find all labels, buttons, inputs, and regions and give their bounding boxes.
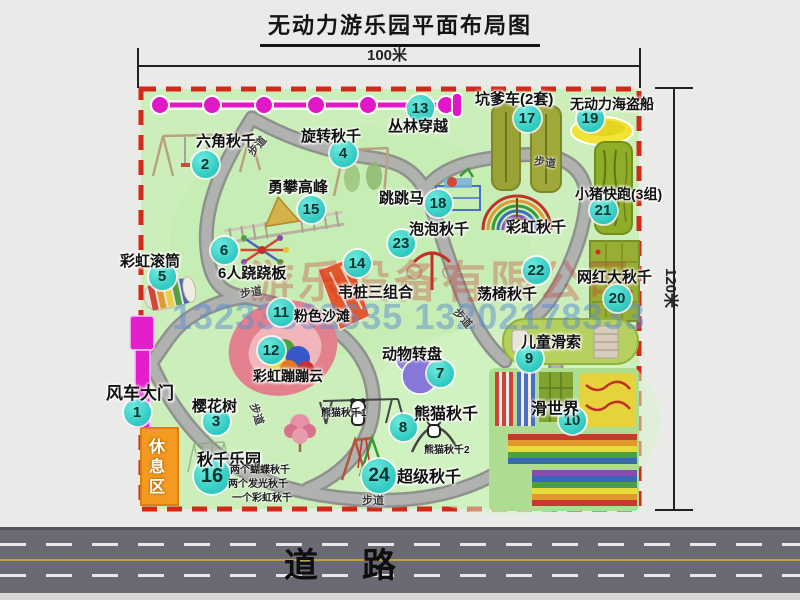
attraction-label-17: 坑爹车(2套) [475, 88, 553, 109]
attraction-badge-15: 15 [298, 196, 325, 223]
attraction-label-14: 韦桩三组合 [338, 281, 413, 302]
attraction-label-4: 旋转秋千 [301, 125, 361, 146]
attraction-badge-11: 11 [268, 299, 295, 326]
attraction-label-7: 动物转盘 [382, 343, 442, 364]
road-shoulder [0, 593, 800, 600]
attraction-badge-12: 12 [258, 337, 285, 364]
sub-label-2: 两个蝴蝶秋千 [230, 461, 290, 476]
attraction-label-18: 跳跳马 [379, 187, 424, 208]
attraction-label-9: 儿童滑索 [521, 331, 581, 352]
attraction-badge-20: 20 [604, 285, 631, 312]
attraction-label-rainbow-swing: 彩虹秋千 [506, 216, 566, 237]
attraction-label-6: 6人跷跷板 [218, 262, 286, 283]
attraction-label-3: 樱花树 [192, 395, 237, 416]
sub-label-1: 熊猫秋千2 [424, 441, 470, 456]
attraction-label-15: 勇攀高峰 [268, 176, 328, 197]
attraction-label-8: 熊猫秋千 [414, 400, 478, 424]
attraction-label-23: 泡泡秋千 [409, 218, 469, 239]
attraction-label-5: 彩虹滚筒 [120, 250, 180, 271]
attraction-label-1: 风车大门 [106, 379, 174, 404]
walkway-label-5: 步道 [362, 492, 384, 508]
sub-label-4: 一个彩虹秋千 [232, 489, 292, 504]
attraction-label-19: 无动力海盗船 [570, 94, 654, 114]
attraction-badge-22: 22 [523, 257, 550, 284]
slide-world-drawing [489, 368, 639, 511]
slide-band-2 [532, 470, 637, 506]
sub-label-3: 两个发光秋千 [228, 475, 288, 490]
road: 道路 [0, 527, 800, 599]
attraction-badge-6: 6 [211, 237, 238, 264]
park-layout-map: 游乐设备有限公司 13233862635 13202178333 无动力游乐园平… [0, 0, 800, 600]
attraction-badge-2: 2 [192, 151, 219, 178]
rest-area-label: 休息区 [149, 438, 169, 498]
walkway-label-1: 步道 [239, 283, 263, 302]
dimension-width-label: 100米 [367, 44, 407, 65]
attraction-label-12: 彩虹蹦蹦云 [253, 366, 323, 386]
page-title: 无动力游乐园平面布局图 [260, 8, 540, 47]
attraction-badge-24: 24 [362, 459, 396, 493]
attraction-label-24: 超级秋千 [397, 463, 461, 487]
attraction-label-13: 丛林穿越 [388, 115, 448, 136]
slide-band-1 [508, 434, 637, 464]
sub-label-0: 熊猫秋千1 [321, 404, 367, 419]
walkway-label-2: 步道 [533, 153, 557, 172]
attraction-label-21: 小猪快跑(3组) [575, 184, 662, 204]
attraction-badge-8: 8 [390, 414, 417, 441]
dimension-height-label: 120米 [661, 268, 682, 308]
attraction-badge-14: 14 [344, 250, 371, 277]
attraction-label-22: 荡椅秋千 [477, 283, 537, 304]
attraction-badge-18: 18 [425, 190, 452, 217]
road-label: 道路 [284, 538, 440, 587]
attraction-label-11: 粉色沙滩 [294, 306, 350, 326]
attraction-label-10: 滑世界 [531, 395, 579, 419]
attraction-label-20: 网红大秋千 [577, 266, 652, 287]
